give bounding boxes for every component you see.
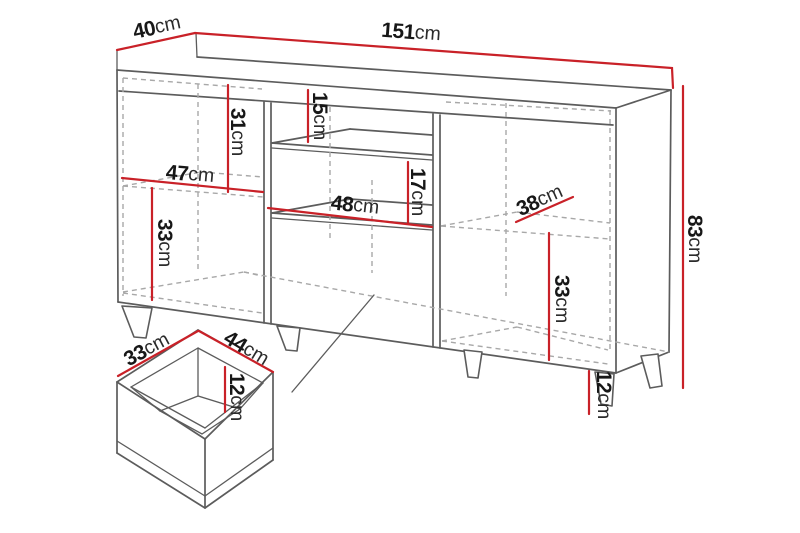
label-15cm: 15cm [308, 92, 331, 140]
leg-front-left [122, 306, 152, 338]
leg-front-mid-right [464, 350, 482, 378]
sideboard-drawing: 40cm 151cm 83cm 31cm 15cm 47cm 17cm 48cm… [0, 0, 800, 533]
label-47cm: 47cm [165, 160, 215, 187]
cabinet-body [117, 33, 671, 373]
measurement-lines [117, 33, 683, 414]
drawer-pointer-line [292, 295, 374, 392]
label-33cm-right: 33cm [550, 275, 573, 323]
label-height-83cm: 83cm [683, 215, 706, 263]
dimension-diagram: 40cm 151cm 83cm 31cm 15cm 47cm 17cm 48cm… [0, 0, 800, 533]
leg-front-mid-left [277, 326, 300, 351]
label-12cm-leg: 12cm [592, 371, 615, 419]
label-drawer-12cm: 12cm [225, 373, 248, 421]
label-31cm: 31cm [226, 108, 249, 156]
hidden-interior-lines [123, 78, 669, 364]
label-33cm-left: 33cm [153, 219, 176, 267]
label-17cm: 17cm [406, 168, 429, 216]
cabinet-legs [122, 306, 662, 406]
middle-shelf-upper [272, 129, 432, 160]
leg-back-right [641, 354, 662, 388]
label-width-151cm: 151cm [380, 18, 441, 46]
